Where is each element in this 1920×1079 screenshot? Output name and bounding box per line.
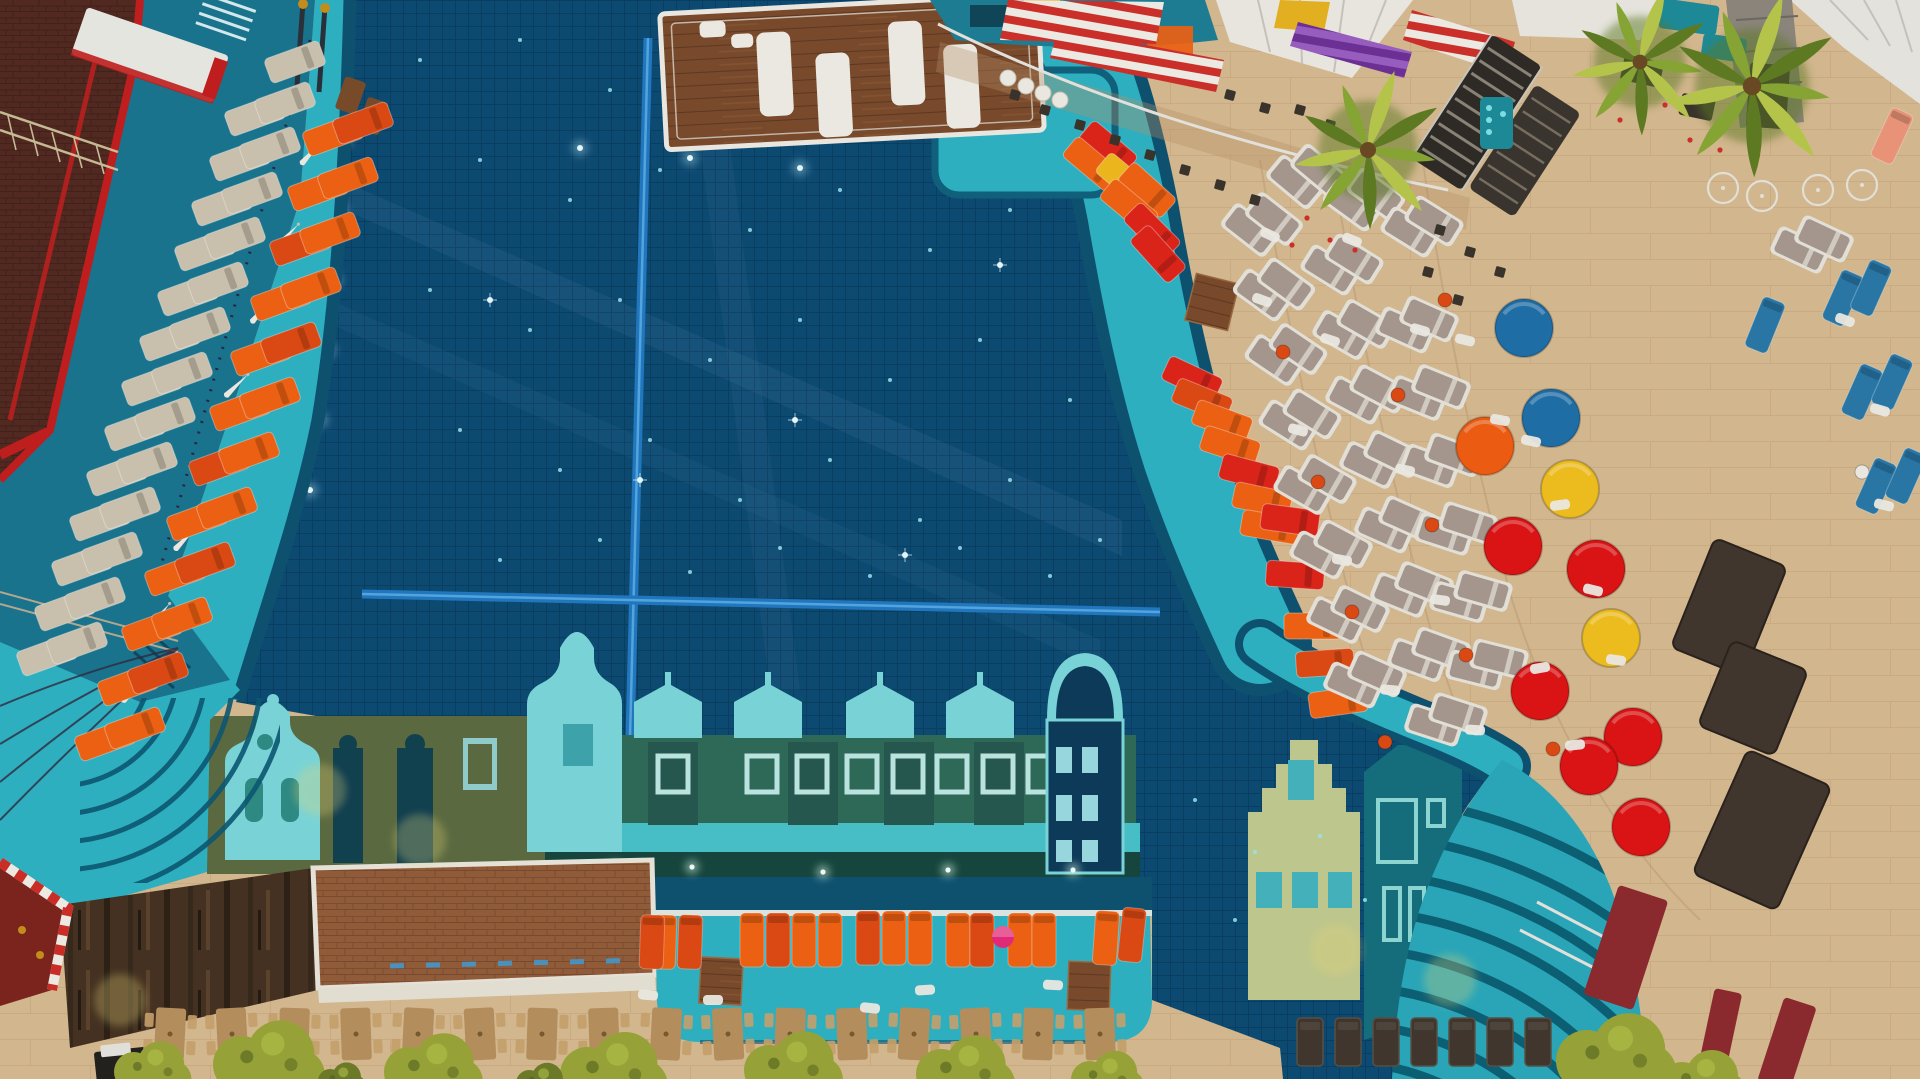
dusk-tint bbox=[0, 0, 1920, 1079]
aerial-pool-photo bbox=[0, 0, 1920, 1079]
